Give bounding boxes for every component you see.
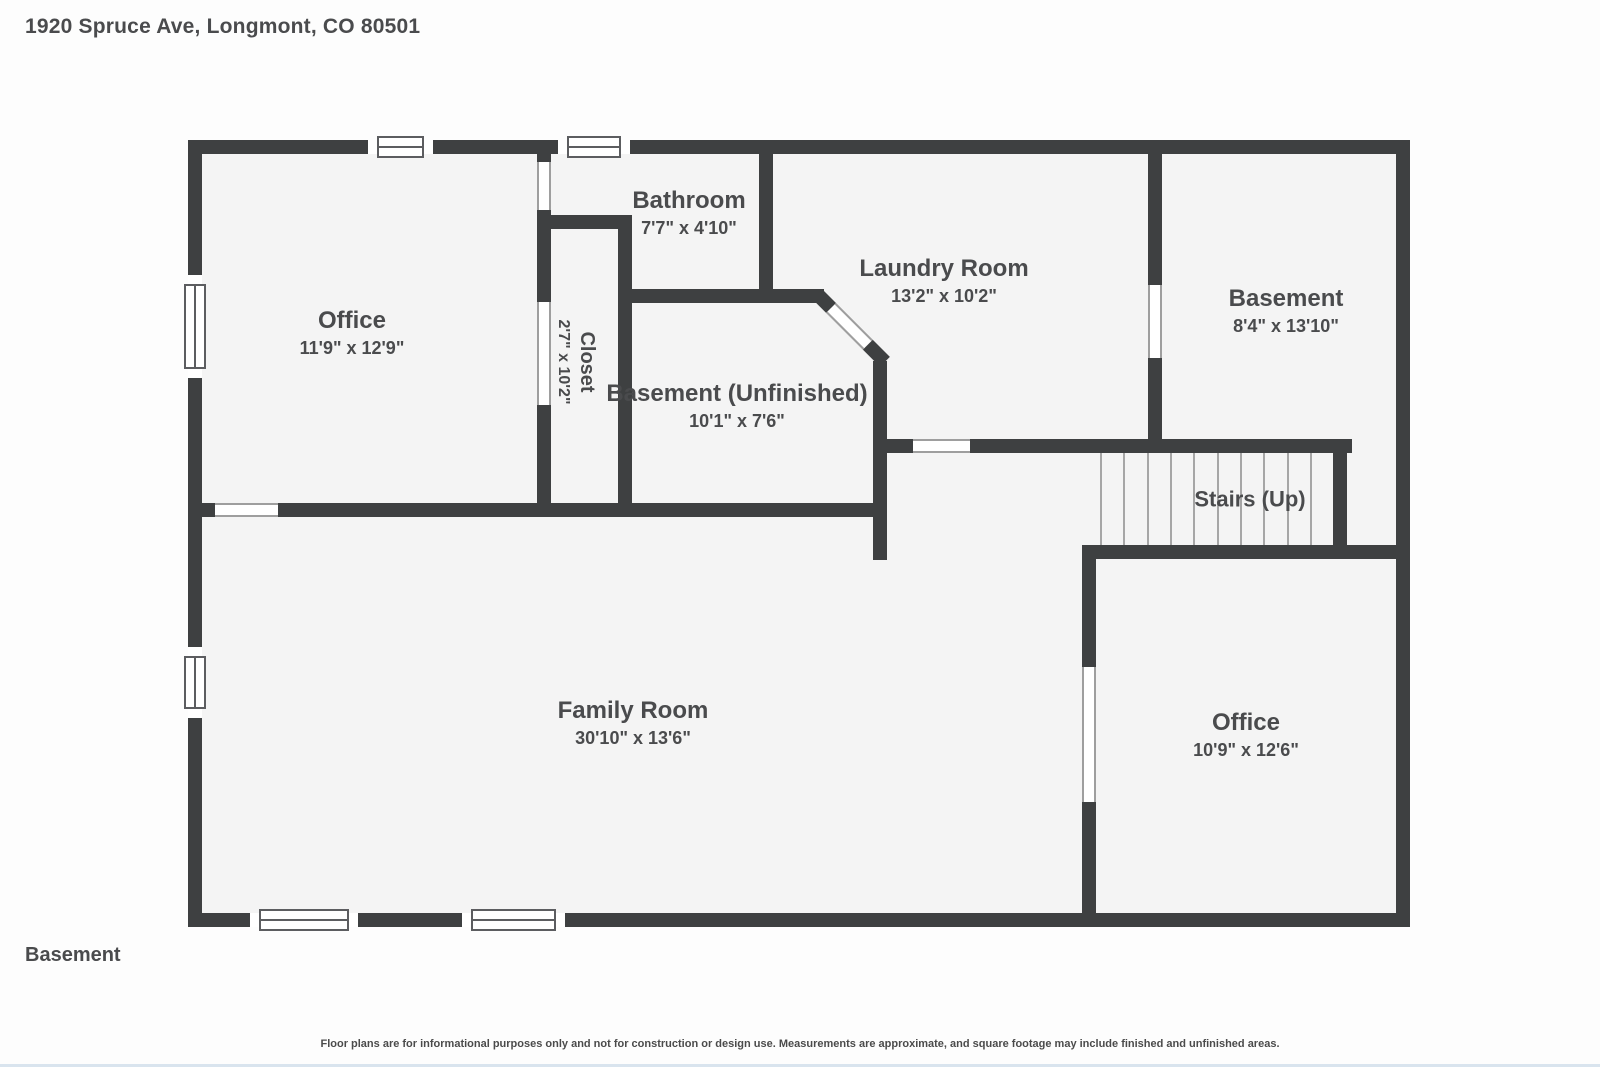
stair-tread	[1123, 453, 1125, 545]
window	[250, 913, 358, 927]
room-dimensions: 13'2" x 10'2"	[859, 286, 1028, 308]
room-dimensions: 11'9" x 12'9"	[300, 338, 405, 360]
room-name: Closet	[575, 319, 598, 404]
room-label-office-bottom-right: Office 10'9" x 12'6"	[1193, 709, 1299, 761]
room-name: Basement	[1229, 285, 1344, 313]
room-dimensions: 10'1" x 7'6"	[606, 411, 867, 433]
room-name: Basement (Unfinished)	[606, 380, 867, 408]
wall	[1082, 802, 1096, 913]
room-label-bathroom: Bathroom 7'7" x 4'10"	[632, 187, 745, 239]
room-label-laundry: Laundry Room 13'2" x 10'2"	[859, 255, 1028, 307]
door-opening	[1082, 667, 1096, 802]
window	[462, 913, 565, 927]
floor-area	[195, 147, 1403, 920]
wall	[537, 154, 551, 162]
room-dimensions: 30'10" x 13'6"	[558, 728, 709, 750]
room-name: Family Room	[558, 697, 709, 725]
room-label-stairs: Stairs (Up)	[1194, 486, 1305, 511]
wall	[1148, 154, 1162, 285]
room-label-family-room: Family Room 30'10" x 13'6"	[558, 697, 709, 749]
wall	[1082, 545, 1410, 559]
room-label-basement-unfinished: Basement (Unfinished) 10'1" x 7'6"	[606, 380, 867, 432]
wall	[1333, 453, 1347, 545]
room-dimensions: 8'4" x 13'10"	[1229, 316, 1344, 338]
wall	[887, 439, 913, 453]
floor-level-label: Basement	[25, 944, 121, 967]
door-opening	[537, 162, 551, 210]
door-opening	[1148, 285, 1162, 358]
wall	[873, 361, 887, 560]
wall	[278, 503, 887, 517]
window	[188, 275, 202, 378]
wall	[188, 140, 202, 927]
room-name: Stairs (Up)	[1194, 486, 1305, 511]
room-label-office-top-left: Office 11'9" x 12'9"	[300, 307, 405, 359]
door-opening	[215, 503, 278, 517]
stair-tread	[1100, 453, 1102, 545]
door-opening	[913, 439, 970, 453]
room-dimensions: 7'7" x 4'10"	[632, 218, 745, 240]
wall	[618, 229, 632, 517]
room-dimensions: 10'9" x 12'6"	[1193, 740, 1299, 762]
door-opening	[537, 302, 551, 405]
room-label-closet: Closet 2'7" x 10'2"	[554, 319, 598, 404]
wall	[537, 215, 632, 229]
stair-tread	[1310, 453, 1312, 545]
floor-plan-page: 1920 Spruce Ave, Longmont, CO 80501	[0, 0, 1600, 1067]
window	[188, 647, 202, 718]
room-name: Bathroom	[632, 187, 745, 215]
wall	[618, 289, 824, 303]
wall	[537, 405, 551, 517]
room-name: Laundry Room	[859, 255, 1028, 283]
room-label-basement-top-right: Basement 8'4" x 13'10"	[1229, 285, 1344, 337]
wall	[1082, 559, 1096, 667]
room-name: Office	[1193, 709, 1299, 737]
window	[558, 140, 630, 154]
room-name: Office	[300, 307, 405, 335]
floor-plan: Office 11'9" x 12'9" Closet 2'7" x 10'2"…	[0, 0, 1600, 1067]
wall	[1396, 140, 1410, 927]
window	[368, 140, 433, 154]
wall	[759, 154, 773, 303]
room-dimensions: 2'7" x 10'2"	[554, 319, 573, 404]
disclaimer-text: Floor plans are for informational purpos…	[0, 1038, 1600, 1050]
stair-tread	[1147, 453, 1149, 545]
wall	[1148, 358, 1162, 453]
wall	[188, 913, 1410, 927]
stair-tread	[1170, 453, 1172, 545]
wall	[202, 503, 215, 517]
